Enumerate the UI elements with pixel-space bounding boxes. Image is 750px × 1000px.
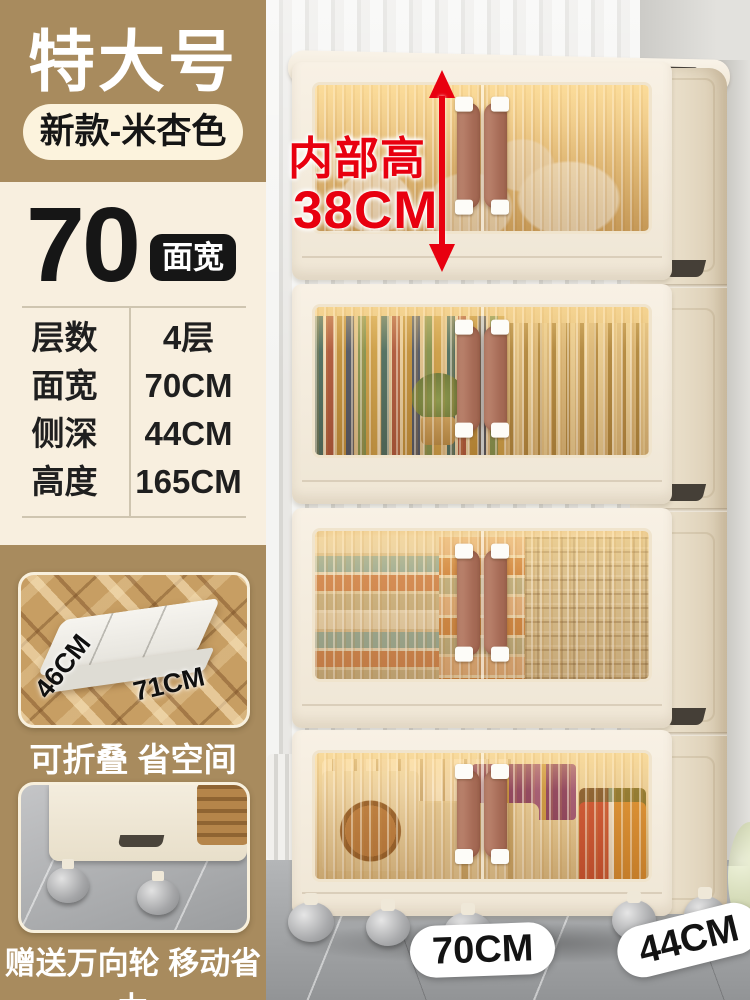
door-handle — [454, 544, 510, 662]
width-unit-badge: 面宽 — [150, 234, 236, 281]
cabinet-tier-3 — [292, 508, 672, 728]
handle-clip — [491, 320, 509, 335]
caster-wheel — [366, 908, 410, 946]
handle-strap — [484, 103, 507, 209]
spec-panel: 70 面宽 层数 4层 面宽 70CM 侧深 44CM 高度 165CM — [0, 182, 266, 545]
handle-strap — [457, 770, 480, 858]
tier-3-window — [312, 528, 652, 682]
measure-arrow-line-icon — [439, 96, 445, 246]
caster-wheel — [137, 879, 179, 915]
door-handle — [454, 320, 510, 438]
cabinet-tier-2 — [292, 284, 672, 504]
divider — [22, 306, 246, 308]
cookie-pack — [322, 771, 419, 872]
spec-row: 侧深 44CM — [0, 410, 266, 458]
sauce-bottles — [579, 788, 646, 879]
handle-strap — [457, 326, 480, 432]
internal-height-value: 38CM — [293, 184, 438, 237]
handle-clip — [491, 97, 509, 112]
handle-clip — [491, 544, 509, 559]
handle-strap — [484, 550, 507, 656]
width-value: 70 — [26, 192, 138, 298]
spec-value: 165CM — [131, 458, 246, 506]
handle-clip — [455, 647, 473, 662]
handle-strap — [484, 326, 507, 432]
spec-label: 高度 — [0, 458, 129, 506]
handle-clip — [455, 849, 473, 864]
variant-badge: 新款-米杏色 — [23, 104, 243, 160]
spec-label: 面宽 — [0, 362, 129, 410]
handle-clip — [491, 423, 509, 438]
basket-corner — [197, 783, 249, 845]
spec-value: 70CM — [131, 362, 246, 410]
handle-clip — [455, 97, 473, 112]
handle-strap — [457, 103, 480, 209]
wheels-photo-card — [18, 782, 250, 933]
folded-caption: 可折叠 省空间 — [0, 733, 266, 781]
feature-panel: 46CM 71CM 可折叠 省空间 赠送万向轮 移动省力 — [0, 545, 266, 1000]
spec-label: 层数 — [0, 314, 129, 362]
header-panel: 特大号 新款-米杏色 — [0, 0, 266, 182]
measure-arrow-up-icon — [429, 70, 455, 98]
handle-clip — [491, 647, 509, 662]
handle-clip — [455, 423, 473, 438]
spec-value: 4层 — [131, 314, 246, 362]
caster-wheel — [288, 902, 334, 942]
book-spines — [505, 323, 649, 455]
door-handle — [454, 97, 510, 215]
internal-height-label: 内部高 — [288, 136, 426, 181]
spec-row: 高度 165CM — [0, 458, 266, 506]
handle-strap — [457, 550, 480, 656]
tier-2-window — [312, 304, 652, 458]
door-handle — [454, 764, 510, 864]
handle-clip — [455, 200, 473, 215]
wheels-caption: 赠送万向轮 移动省力 — [0, 938, 266, 1000]
handle-clip — [455, 320, 473, 335]
width-dim-pill: 70CM — [409, 921, 556, 978]
tier-4-window — [312, 750, 652, 882]
spec-label: 侧深 — [0, 410, 129, 458]
rolled-towels — [315, 537, 439, 679]
measure-arrow-down-icon — [429, 244, 455, 272]
folded-photo-card: 46CM 71CM — [18, 572, 250, 728]
spec-value: 44CM — [131, 410, 246, 458]
spec-row: 层数 4层 — [0, 314, 266, 362]
handle-clip — [491, 764, 509, 779]
handle-strap — [484, 770, 507, 858]
handle-clip — [491, 849, 509, 864]
divider — [22, 516, 246, 518]
handle-clip — [455, 764, 473, 779]
caster-wheel — [47, 867, 89, 903]
handle-clip — [455, 544, 473, 559]
cabinet-tier-4 — [292, 730, 672, 916]
plaid-blankets — [525, 537, 649, 679]
handle-clip — [491, 200, 509, 215]
size-badge: 特大号 — [0, 8, 266, 105]
product-detail-image: 内部高 38CM 70CM 44CM 特大号 新款-米杏色 70 面宽 层数 4… — [0, 0, 750, 1000]
spec-row: 面宽 70CM — [0, 362, 266, 410]
